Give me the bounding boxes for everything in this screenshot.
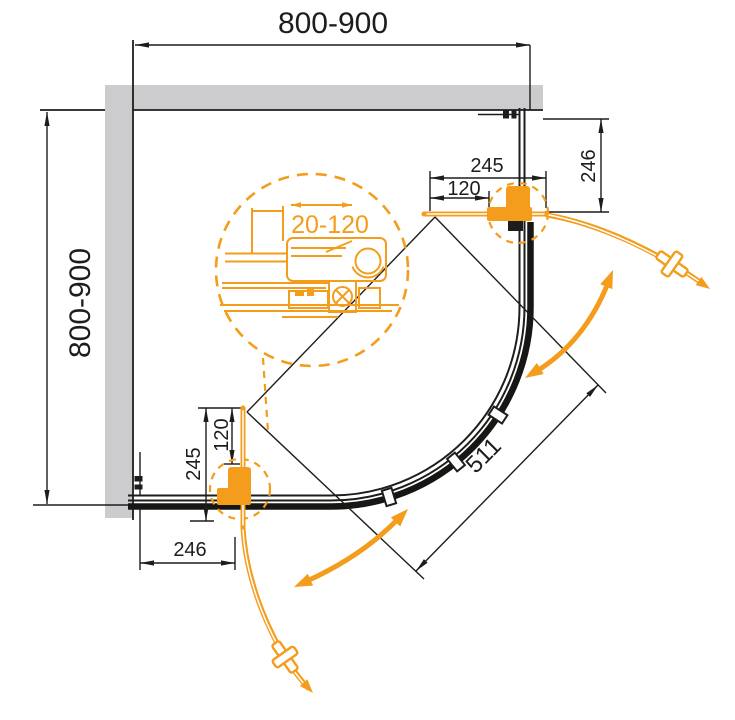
bottom-door-handle	[217, 467, 251, 505]
top-width-label: 800-900	[278, 7, 388, 40]
wall-left	[105, 40, 133, 520]
wall-profile-bracket-top	[478, 111, 519, 119]
top-fixed-panel-label: 246	[578, 149, 600, 182]
dimension-top-246: 246	[543, 119, 609, 212]
swing-arrow-bottom	[291, 504, 412, 592]
detail-circle	[216, 174, 408, 366]
dimension-top-120: 120	[430, 178, 489, 207]
left-depth-label: 800-900	[64, 248, 97, 358]
bottom-handle-offset-label: 120	[211, 418, 233, 451]
bottom-fixed-panel-label: 246	[173, 539, 206, 561]
adjustment-range-label: 20-120	[291, 211, 369, 239]
quadrant-shower-enclosure-diagram: 511 800-900 800-900 245 120 246 245	[0, 0, 735, 720]
top-door-handle	[487, 186, 532, 221]
detail-roller-wheel	[356, 249, 381, 274]
swing-arrow-top	[522, 268, 619, 384]
dimension-bottom-246: 246	[140, 508, 235, 570]
roller-mechanism-detail: 20-120	[216, 174, 408, 432]
door-knob-cross-icon	[265, 636, 306, 679]
entry-width-label: 511	[461, 433, 507, 479]
top-handle-offset-label: 120	[447, 178, 480, 200]
dimension-entry-width: 511	[247, 217, 606, 579]
top-door-width-label: 245	[470, 155, 503, 177]
wall-profile-bracket-bottom	[135, 452, 143, 496]
dimension-bottom-120: 120	[211, 408, 240, 464]
dimension-adjustment-range: 20-120	[252, 205, 369, 253]
door-knob-cross-icon	[651, 244, 694, 285]
bottom-door-width-label: 245	[183, 447, 205, 480]
